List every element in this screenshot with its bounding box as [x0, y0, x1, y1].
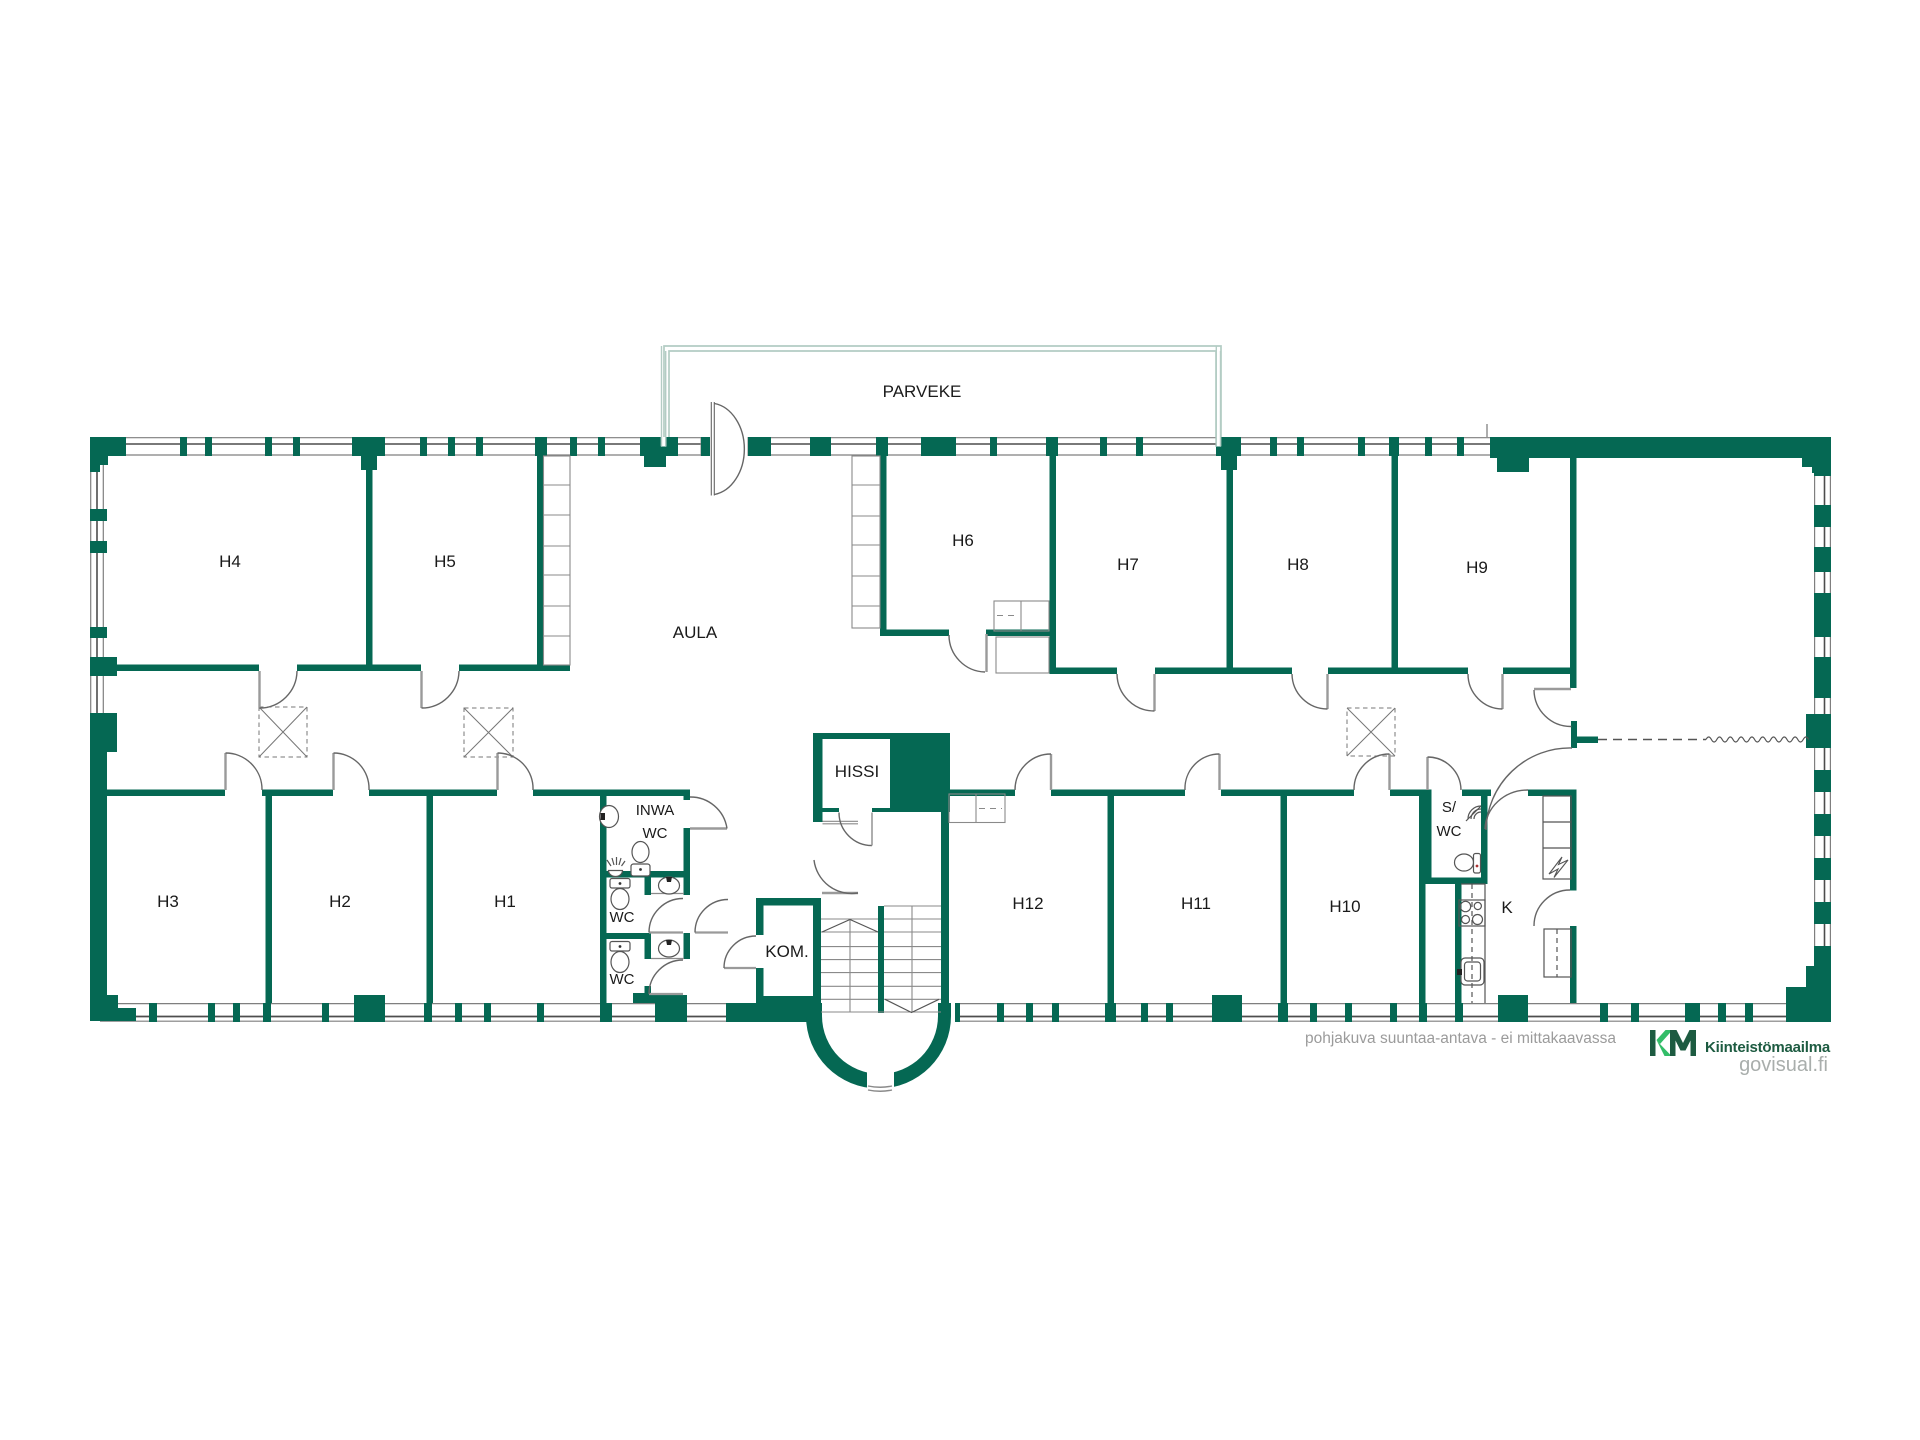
svg-text:H10: H10 — [1329, 897, 1360, 916]
svg-text:H12: H12 — [1012, 894, 1043, 913]
svg-text:K: K — [1501, 898, 1513, 917]
svg-text:H2: H2 — [329, 892, 351, 911]
svg-text:WC: WC — [610, 909, 635, 926]
svg-text:H9: H9 — [1466, 558, 1488, 577]
svg-text:H6: H6 — [952, 531, 974, 550]
svg-text:PARVEKE: PARVEKE — [883, 382, 962, 401]
svg-text:pohjakuva suuntaa-antava - ei: pohjakuva suuntaa-antava - ei mittakaava… — [1305, 1030, 1616, 1047]
svg-text:H8: H8 — [1287, 555, 1309, 574]
svg-text:WC: WC — [610, 971, 635, 988]
svg-text:S/: S/ — [1442, 799, 1457, 816]
svg-text:H5: H5 — [434, 552, 456, 571]
svg-text:WC: WC — [643, 825, 668, 842]
svg-text:HISSI: HISSI — [835, 762, 879, 781]
svg-text:H11: H11 — [1181, 894, 1211, 913]
svg-text:AULA: AULA — [673, 623, 718, 642]
svg-text:govisual.fi: govisual.fi — [1739, 1054, 1828, 1076]
svg-text:H7: H7 — [1117, 555, 1139, 574]
svg-text:KOM.: KOM. — [765, 942, 808, 961]
svg-text:H3: H3 — [157, 892, 179, 911]
svg-text:WC: WC — [1437, 823, 1462, 840]
svg-text:INWA: INWA — [636, 802, 675, 819]
svg-text:H4: H4 — [219, 552, 241, 571]
svg-text:H1: H1 — [494, 892, 516, 911]
